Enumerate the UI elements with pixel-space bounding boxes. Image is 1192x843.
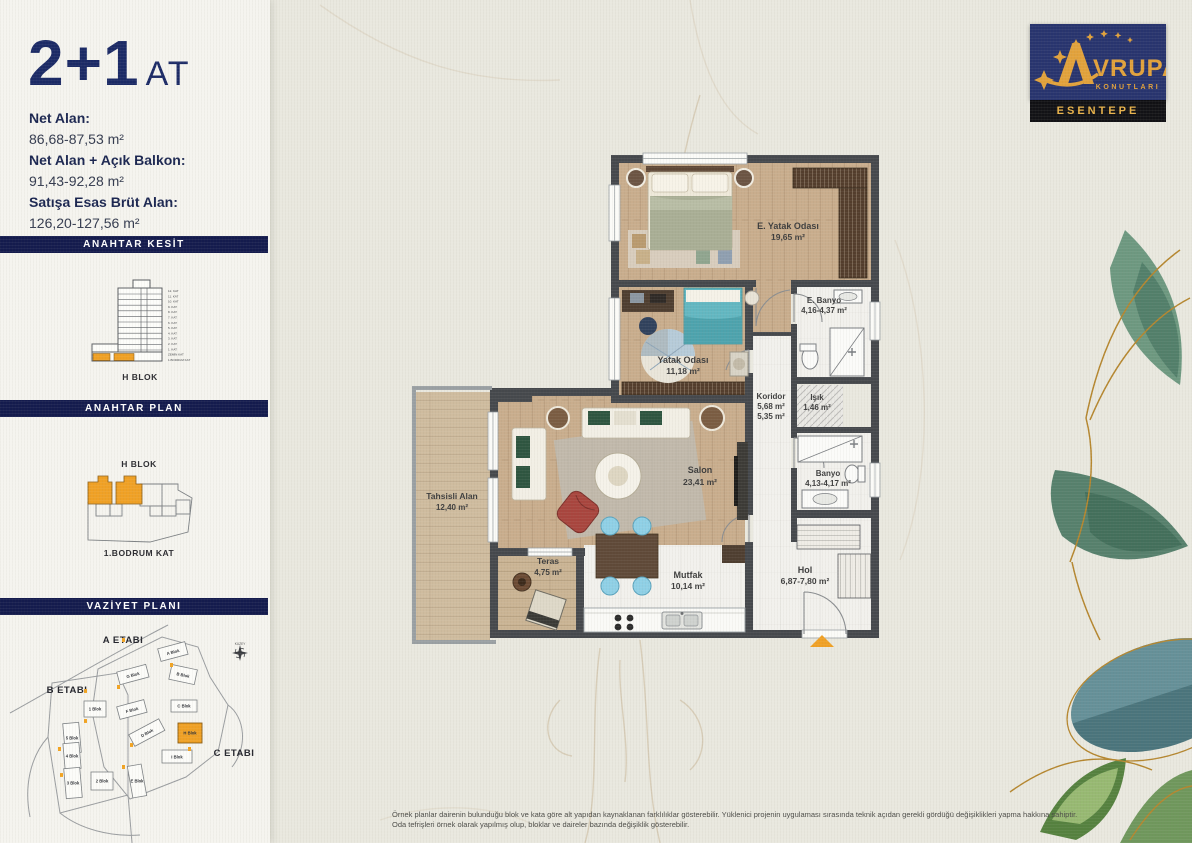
- side-table: [547, 407, 569, 429]
- floor-plan: E. Yatak Odası 19,65 m² E. Banyo 4,16-4,…: [400, 130, 900, 650]
- info-sidebar: 2+1AT Net Alan: 86,68-87,53 m² Net Alan …: [0, 0, 270, 843]
- disclaimer-line-2: Oda tefrişleri örnek olarak yapılmış olu…: [392, 820, 1188, 830]
- unit-type-suffix: AT: [146, 55, 191, 93]
- room-label-tahsisli: Tahsisli Alan: [426, 491, 478, 501]
- area-value: 126,20-127,56 m²: [29, 213, 186, 234]
- area-label: Net Alan + Açık Balkon:: [29, 150, 186, 171]
- building-section-diagram: 12. KAT11. KAT10. KAT9. KAT8. KAT7. KAT6…: [0, 256, 268, 396]
- side-table: [745, 291, 759, 305]
- floor-labels: 12. KAT11. KAT10. KAT9. KAT8. KAT7. KAT6…: [168, 289, 190, 362]
- kitchen-cabinet: [722, 545, 745, 563]
- site-blocks: A Blok G Blok B Blok C Blok F Blok D Blo…: [63, 642, 202, 799]
- floor-label: 11. KAT: [168, 294, 179, 298]
- block-c: C Blok: [177, 704, 191, 709]
- svg-text:4,13-4,17 m²: 4,13-4,17 m²: [805, 479, 851, 488]
- room-label-eyatak: E. Yatak Odası: [757, 221, 819, 231]
- highlighted-floor: [114, 354, 134, 361]
- tv-unit: [737, 442, 748, 520]
- unit-type-title: 2+1: [28, 27, 140, 99]
- logo-brand-subtext: KONUTLARI: [1096, 84, 1161, 91]
- room-label-teras: Teras: [537, 556, 559, 566]
- svg-text:1,46 m²: 1,46 m²: [803, 403, 831, 412]
- floor-label: 8. KAT: [168, 310, 177, 314]
- block-3: 3 Blok: [67, 781, 80, 786]
- block-1: 1 Blok: [89, 707, 102, 712]
- room-label-salon: Salon: [688, 465, 713, 475]
- floor-label: 4. KAT: [168, 331, 177, 335]
- floor-label: 3. KAT: [168, 337, 177, 341]
- passage-floor: [753, 280, 791, 335]
- highlighted-units: [88, 476, 142, 504]
- kesit-block-label: H BLOK: [122, 372, 158, 382]
- room-label-isik: Işık: [810, 393, 824, 402]
- block-4: 4 Blok: [66, 754, 79, 759]
- compass-label: KUZEY: [235, 642, 247, 646]
- svg-text:10,14 m²: 10,14 m²: [671, 581, 705, 591]
- desk: [622, 290, 674, 312]
- block-e: E Blok: [130, 779, 144, 784]
- highlighted-floor: [93, 354, 110, 361]
- svg-text:5,35 m²: 5,35 m²: [757, 412, 785, 421]
- svg-text:5,68 m²: 5,68 m²: [757, 402, 785, 411]
- area-value: 91,43-92,28 m²: [29, 171, 186, 192]
- key-plan-diagram: H BLOK 1.BODRUM KAT: [0, 420, 268, 580]
- floor-label: 5. KAT: [168, 326, 177, 330]
- chair: [601, 577, 619, 595]
- block-i: I Blok: [171, 755, 183, 760]
- section-header-anahtar-kesit: ANAHTAR KESİT: [0, 236, 268, 253]
- floor-label: 1.BODRUM KAT: [168, 358, 190, 362]
- svg-text:23,41 m²: 23,41 m²: [683, 477, 717, 487]
- chair: [601, 517, 619, 535]
- dining-table: [596, 534, 658, 578]
- floor-label: 1. KAT: [168, 347, 177, 351]
- svg-text:6,87-7,80 m²: 6,87-7,80 m²: [781, 576, 830, 586]
- floor-label: 2. KAT: [168, 342, 177, 346]
- disclaimer-line-1: Örnek planlar dairenin bulunduğu blok ve…: [392, 810, 1188, 820]
- tahsisli-alan-floor: [416, 392, 490, 640]
- block-5: 5 Blok: [66, 736, 79, 741]
- side-table: [700, 406, 724, 430]
- corridor-floor: [753, 335, 791, 542]
- keyplan-floor-label: 1.BODRUM KAT: [104, 548, 175, 558]
- svg-text:11,18 m²: 11,18 m²: [666, 366, 700, 376]
- site-plan-diagram: A ETABI B ETABI C ETABI KUZEY A Blok G B…: [0, 617, 268, 843]
- logo-emblem: VRUPA KONUTLARI: [1030, 24, 1166, 100]
- svg-text:4,75 m²: 4,75 m²: [534, 568, 562, 577]
- compass-north-icon: KUZEY: [232, 642, 248, 661]
- floor-label: 6. KAT: [168, 321, 177, 325]
- brand-logo: VRUPA KONUTLARI ESENTEPE: [1030, 24, 1166, 122]
- nightstand: [735, 169, 753, 187]
- project-name-badge: ESENTEPE: [1030, 100, 1166, 122]
- area-value: 86,68-87,53 m²: [29, 129, 186, 150]
- room-label-yatak: Yatak Odası: [657, 355, 708, 365]
- chair: [633, 577, 651, 595]
- area-label: Net Alan:: [29, 108, 186, 129]
- floor-label: 7. KAT: [168, 316, 177, 320]
- room-label-mutfak: Mutfak: [674, 570, 704, 580]
- etap-c-label: C ETABI: [214, 748, 255, 759]
- keyplan-block-label: H BLOK: [121, 459, 157, 469]
- disclaimer: Örnek planlar dairenin bulunduğu blok ve…: [392, 810, 1188, 829]
- svg-text:19,65 m²: 19,65 m²: [771, 232, 805, 242]
- block-2: 2 Blok: [96, 779, 109, 784]
- right-leaf-decoration: [1051, 230, 1190, 640]
- room-label-koridor: Koridor: [757, 392, 786, 401]
- floor-label: 10. KAT: [168, 300, 179, 304]
- page-title: 2+1AT: [28, 26, 191, 100]
- etap-b-label: B ETABI: [47, 685, 88, 696]
- chair: [633, 517, 651, 535]
- floor-label: ZEMİN KAT: [168, 352, 184, 357]
- logo-brand-text: VRUPA: [1093, 55, 1166, 82]
- area-label: Satışa Esas Brüt Alan:: [29, 192, 186, 213]
- block-h: H Blok: [183, 731, 197, 736]
- nightstand: [627, 169, 645, 187]
- area-summary: Net Alan: 86,68-87,53 m² Net Alan + Açık…: [29, 108, 186, 234]
- sink-icon: [662, 612, 702, 629]
- room-label-banyo: Banyo: [816, 469, 841, 478]
- svg-text:4,16-4,37 m²: 4,16-4,37 m²: [801, 306, 847, 315]
- floor-label: 12. KAT: [168, 289, 179, 293]
- floor-label: 9. KAT: [168, 305, 177, 309]
- room-label-ebanyo: E. Banyo: [807, 296, 841, 305]
- section-header-vaziyet-plani: VAZİYET PLANI: [0, 598, 268, 615]
- svg-text:12,40 m²: 12,40 m²: [436, 503, 468, 512]
- desk-chair: [639, 317, 657, 335]
- room-label-hol: Hol: [798, 565, 813, 575]
- section-header-anahtar-plan: ANAHTAR PLAN: [0, 400, 268, 417]
- brochure-page: 2+1AT Net Alan: 86,68-87,53 m² Net Alan …: [0, 0, 1192, 843]
